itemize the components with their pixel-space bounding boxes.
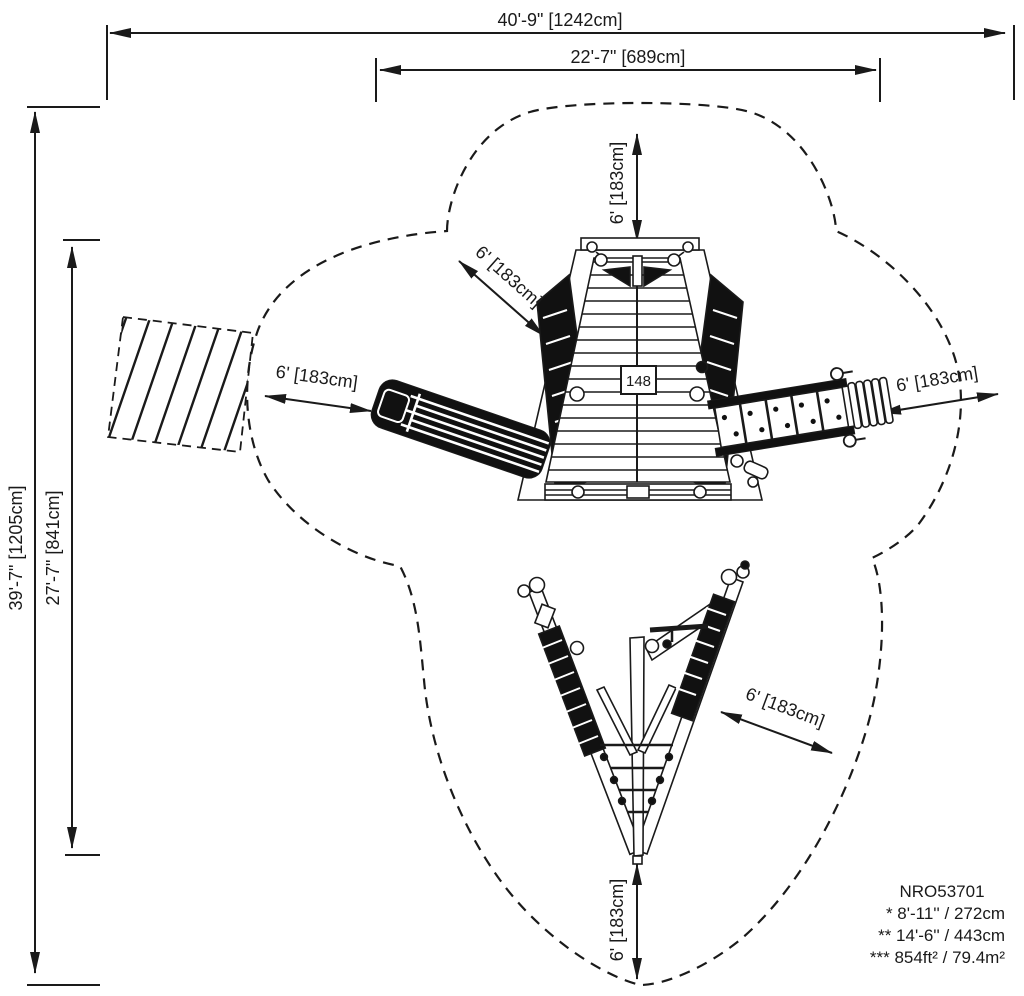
slide-structure [367,376,553,482]
footnote-2: ** 14'-6'' / 443cm [878,926,1005,945]
notes-block: NRO53701 * 8'-11'' / 272cm ** 14'-6'' / … [870,882,1005,967]
deck-tag-label: 148 [626,373,651,390]
clearance-bottom-label: 6' [183cm] [607,879,627,961]
overall-width-label: 40'-9" [1242cm] [498,10,623,30]
safety-zone-outline [247,103,961,985]
deck-tag: 148 [621,366,656,394]
overall-depth-label: 39'-7" [1205cm] [6,486,26,611]
hatched-area [48,295,326,475]
footnote-1: * 8'-11'' / 272cm [886,904,1005,923]
dimension-lines [27,25,1014,985]
playset-plan-diagram: 148 40'-9" [1242cm] 22'-7" [689cm] 39'-7… [0,0,1024,996]
footnote-3: *** 854ft² / 79.4m² [870,948,1005,967]
clearance-top-label: 6' [183cm] [607,142,627,224]
swing-structure [518,561,749,864]
inner-width-label: 22'-7" [689cm] [571,47,686,67]
clearance-upper-left-label: 6' [183cm] [472,242,547,312]
clearance-left-label: 6' [183cm] [275,362,359,393]
model-number: NRO53701 [899,882,984,901]
plan-drawing: 148 40'-9" [1242cm] 22'-7" [689cm] 39'-7… [0,0,1024,996]
clearance-right-label: 6' [183cm] [895,363,980,396]
inner-depth-label: 27'-7" [841cm] [43,491,63,606]
